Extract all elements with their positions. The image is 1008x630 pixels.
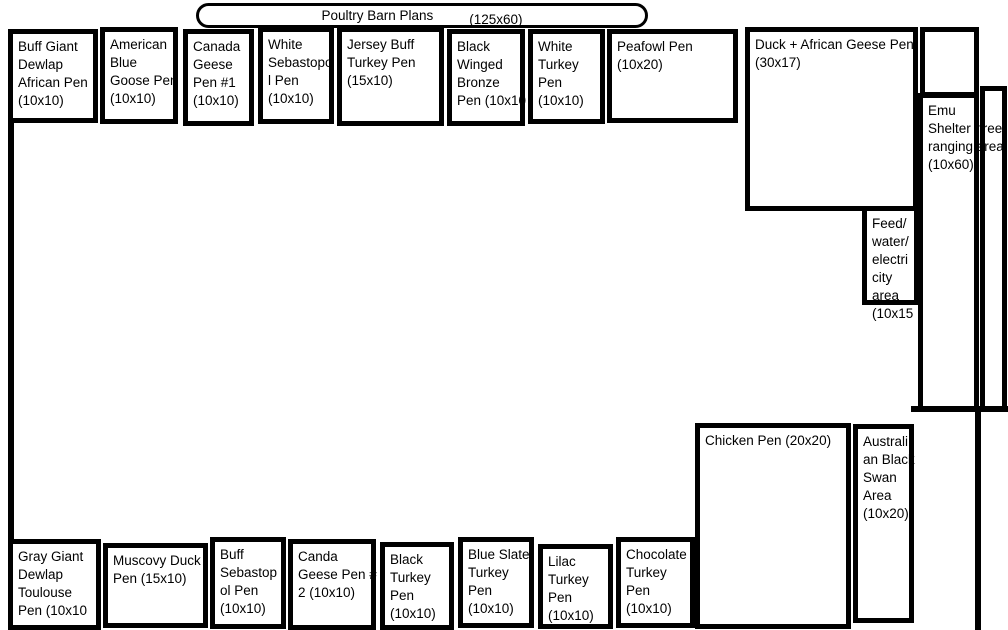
duck-african-geese-pen-label: Duck + African Geese Pen (30x17) xyxy=(755,36,914,72)
american-blue-goose-pen: American Blue Goose Pen (10x10) xyxy=(100,27,178,124)
lilac-turkey-pen-label: Lilac Turkey Pen (10x10) xyxy=(548,553,594,625)
buff-sebastopol-pen-label: Buff Sebastop ol Pen (10x10) xyxy=(220,546,277,618)
chocolate-turkey-pen-label: Chocolate Turkey Pen (10x10) xyxy=(626,546,687,618)
duck-african-geese-pen: Duck + African Geese Pen (30x17) xyxy=(745,27,918,211)
blue-slate-turkey-pen: Blue Slate Turkey Pen (10x10) xyxy=(458,537,534,628)
chicken-pen: Chicken Pen (20x20) xyxy=(695,423,851,629)
black-winged-bronze-pen: Black Winged Bronze Pen (10x10 xyxy=(447,29,525,126)
black-turkey-pen-label: Black Turkey Pen (10x10) xyxy=(390,551,436,623)
peafowl-pen-label: Peafowl Pen (10x20) xyxy=(617,38,693,74)
feed-water-electricity-area: Feed/ water/ electri city area (10x15 xyxy=(862,206,919,305)
emu-shelter-free-ranging-area-label: Emu Shelter (free ranging area (10x60) xyxy=(928,102,1004,174)
chocolate-turkey-pen: Chocolate Turkey Pen (10x10) xyxy=(616,537,695,628)
page-title: Poultry Barn Plans xyxy=(321,8,433,23)
canda-geese-pen-2-label: Canda Geese Pen # 2 (10x10) xyxy=(298,548,377,602)
chicken-pen-label: Chicken Pen (20x20) xyxy=(705,432,831,450)
australian-black-swan-area-label: Australi an Black Swan Area (10x20) xyxy=(863,433,915,523)
black-winged-bronze-pen-label: Black Winged Bronze Pen (10x10 xyxy=(457,38,526,110)
emu-shelter-free-ranging-area: Emu Shelter (free ranging area (10x60) xyxy=(918,93,979,411)
unlabeled-box-top-right xyxy=(920,27,979,97)
poultry-barn-plan-diagram: Poultry Barn Plans (125x60) Buff Giant D… xyxy=(0,0,1008,630)
white-turkey-pen-label: White Turkey Pen (10x10) xyxy=(538,38,584,110)
feed-water-electricity-area-label: Feed/ water/ electri city area (10x15 xyxy=(872,215,913,323)
gray-giant-dewlap-toulouse-pen-label: Gray Giant Dewlap Toulouse Pen (10x10 xyxy=(18,548,87,620)
buff-giant-dewlap-african-pen-label: Buff Giant Dewlap African Pen (10x10) xyxy=(18,38,88,110)
title-banner: Poultry Barn Plans (125x60) xyxy=(196,3,648,28)
muscovy-duck-pen: Muscovy Duck Pen (15x10) xyxy=(103,543,208,628)
canda-geese-pen-2: Canda Geese Pen # 2 (10x10) xyxy=(288,539,376,630)
buff-giant-dewlap-african-pen: Buff Giant Dewlap African Pen (10x10) xyxy=(8,29,98,123)
white-sebastopol-pen: White Sebastopo l Pen (10x10) xyxy=(258,27,334,124)
peafowl-pen: Peafowl Pen (10x20) xyxy=(607,29,738,123)
canada-geese-pen-1: Canada Geese Pen #1 (10x10) xyxy=(183,29,254,126)
lilac-turkey-pen: Lilac Turkey Pen (10x10) xyxy=(538,544,613,629)
right-boundary-line xyxy=(975,409,981,630)
jersey-buff-turkey-pen-label: Jersey Buff Turkey Pen (15x10) xyxy=(347,36,416,90)
white-sebastopol-pen-label: White Sebastopo l Pen (10x10) xyxy=(268,36,333,108)
title-dimensions: (125x60) xyxy=(469,12,522,27)
american-blue-goose-pen-label: American Blue Goose Pen (10x10) xyxy=(110,36,178,108)
jersey-buff-turkey-pen: Jersey Buff Turkey Pen (15x10) xyxy=(337,27,444,126)
black-turkey-pen: Black Turkey Pen (10x10) xyxy=(380,542,454,630)
buff-sebastopol-pen: Buff Sebastop ol Pen (10x10) xyxy=(210,537,286,629)
australian-black-swan-area: Australi an Black Swan Area (10x20) xyxy=(853,424,914,623)
canada-geese-pen-1-label: Canada Geese Pen #1 (10x10) xyxy=(193,38,240,110)
blue-slate-turkey-pen-label: Blue Slate Turkey Pen (10x10) xyxy=(468,546,530,618)
gray-giant-dewlap-toulouse-pen: Gray Giant Dewlap Toulouse Pen (10x10 xyxy=(8,539,101,630)
white-turkey-pen: White Turkey Pen (10x10) xyxy=(528,29,605,124)
muscovy-duck-pen-label: Muscovy Duck Pen (15x10) xyxy=(113,552,201,588)
